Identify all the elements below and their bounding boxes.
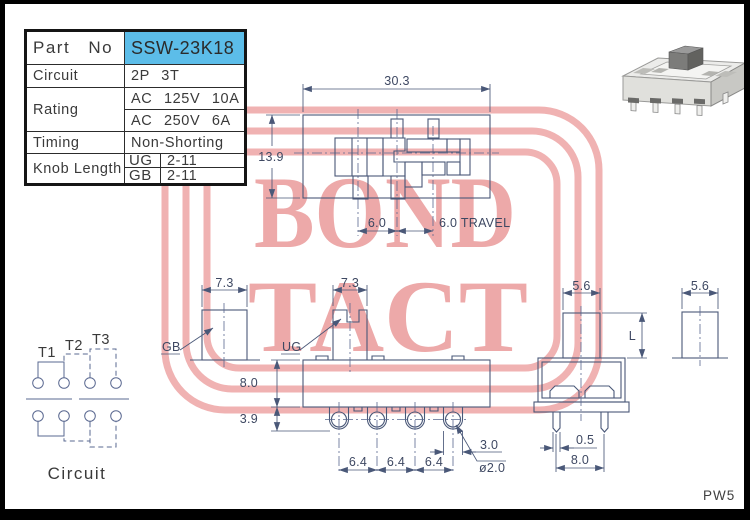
dim-travel-label: 6.0 TRAVEL	[439, 216, 510, 230]
circuit-diagram: T1 T2 T3 Circuit	[26, 332, 129, 483]
timing-value: Non-Shorting	[125, 132, 244, 154]
knob-ug-key: UG	[125, 154, 161, 168]
dim-position-label: 6.0	[368, 216, 386, 230]
t2-label: T2	[65, 338, 83, 354]
dim-terminal-width-label: 3.0	[480, 438, 498, 452]
dim-top-height-label: 13.9	[258, 150, 284, 164]
dim-knob-detail-label: 5.6	[691, 279, 709, 293]
dim-leg-width-label: 0.5	[576, 433, 594, 447]
knob-length-label: Knob Length	[27, 154, 125, 183]
spec-table: Part No SSW-23K18 Circuit 2P 3T Rating A…	[24, 29, 247, 186]
rating-value-2: AC 250V 6A	[125, 110, 244, 132]
dim-gb-knob-label: 7.3	[215, 276, 233, 290]
dim-pitch-label-2: 6.4	[387, 455, 405, 469]
page-code: PW5	[703, 488, 735, 503]
extension-lines	[553, 432, 560, 452]
timing-label: Timing	[27, 132, 125, 154]
knob-ug-value: 2-11	[161, 154, 244, 168]
dim-terminal-length-label: 3.9	[240, 412, 258, 426]
circuit-label: Circuit	[27, 65, 125, 88]
circuit-value: 2P 3T	[125, 65, 244, 88]
dim-pitch-label-1: 6.4	[349, 455, 367, 469]
part-no-value: SSW-23K18	[125, 32, 244, 65]
rating-value-1: AC 125V 10A	[125, 88, 244, 110]
knob-detail-drawing: 5.6	[672, 279, 728, 366]
product-photo	[623, 46, 745, 116]
knob-gb-value: 2-11	[161, 168, 244, 183]
dim-top-width-label: 30.3	[384, 74, 410, 88]
knob-gb-key: GB	[125, 168, 161, 183]
t1-top-link	[38, 362, 64, 378]
t2-bottom-link	[64, 421, 90, 441]
gb-knob-tag: GB	[162, 340, 181, 354]
dim-leg-span-label: 8.0	[571, 453, 589, 467]
part-no-label: Part No	[27, 32, 125, 65]
rating-label: Rating	[27, 88, 125, 132]
side-legs	[553, 412, 608, 432]
t1-bottom-link	[38, 421, 64, 436]
t2-top-link	[64, 354, 90, 378]
dim-ug-knob-label: 7.3	[341, 276, 359, 290]
circuit-title: Circuit	[48, 464, 107, 483]
extension-lines	[602, 313, 647, 358]
dim-hole-dia-label: ø2.0	[479, 461, 505, 475]
t3-bottom-link	[90, 421, 116, 447]
t3-top-link	[90, 349, 116, 378]
dim-side-knob-label: 5.6	[572, 279, 590, 293]
dim-pitch-label-3: 6.4	[425, 455, 443, 469]
watermark-word-1: BOND	[254, 156, 516, 270]
datasheet-page: BOND TACT	[0, 0, 750, 520]
t3-label: T3	[92, 332, 110, 348]
watermark-word-2: TACT	[248, 260, 528, 374]
knob-front-face	[669, 52, 688, 70]
ug-knob-tag: UG	[282, 340, 301, 354]
dim-knob-length-label: L	[629, 329, 636, 343]
t1-label: T1	[38, 345, 56, 361]
dim-body-height-label: 8.0	[240, 376, 258, 390]
